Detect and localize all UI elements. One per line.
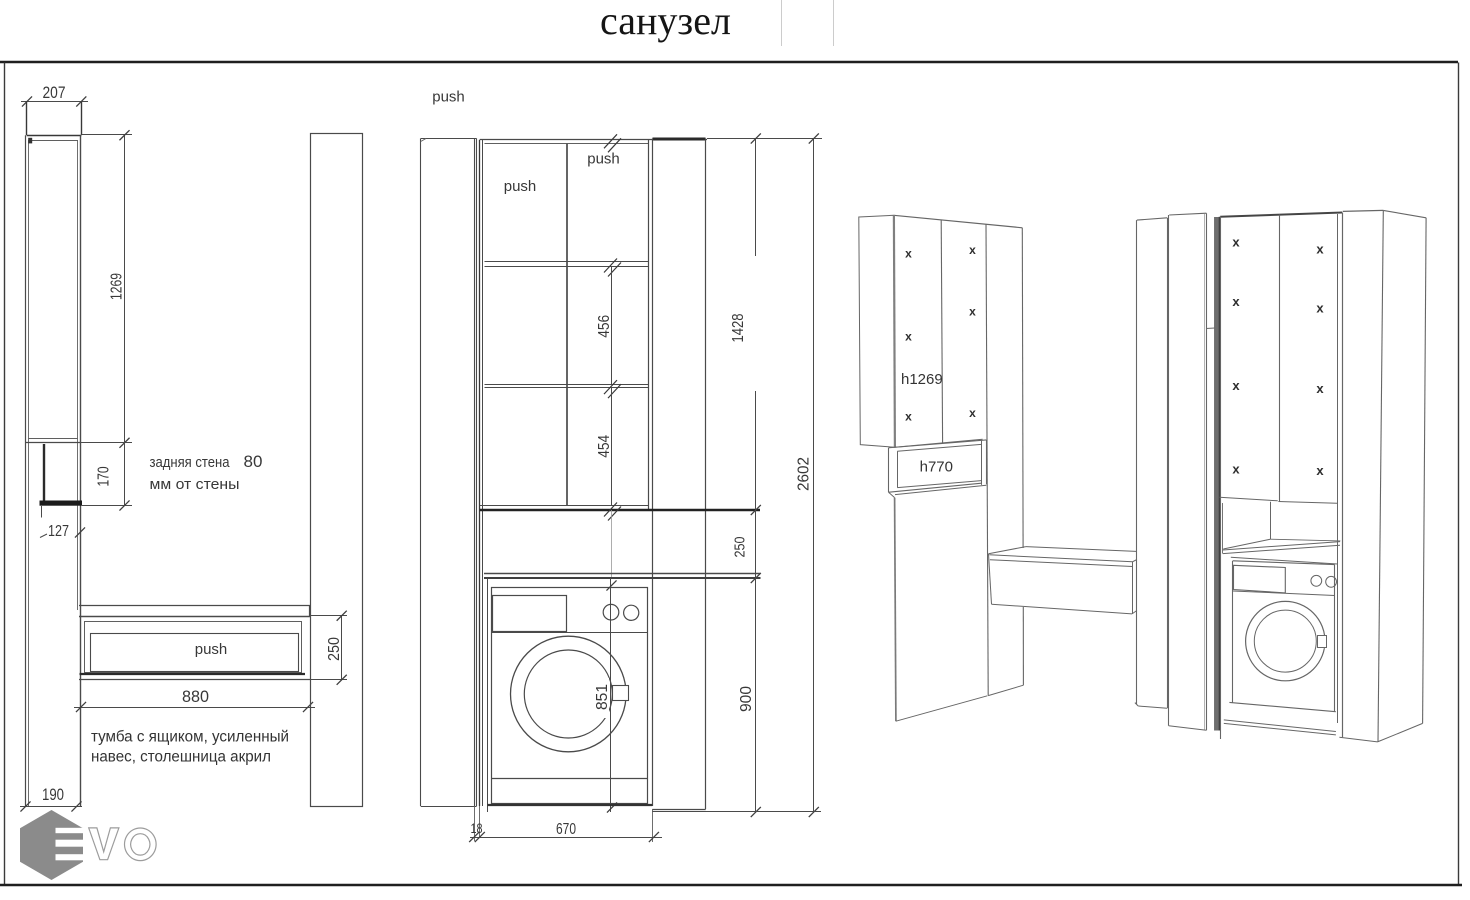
- svg-text:207: 207: [43, 83, 66, 102]
- svg-text:санузел: санузел: [600, 0, 731, 43]
- svg-text:x: x: [1232, 234, 1240, 249]
- svg-text:x: x: [905, 410, 912, 424]
- svg-text:x: x: [905, 247, 912, 261]
- svg-text:x: x: [1316, 381, 1324, 396]
- svg-text:x: x: [969, 305, 976, 319]
- svg-text:x: x: [969, 243, 976, 257]
- svg-text:push: push: [432, 89, 465, 106]
- svg-text:x: x: [905, 330, 912, 344]
- svg-text:80: 80: [244, 452, 263, 471]
- svg-text:250: 250: [732, 537, 749, 558]
- svg-text:x: x: [1232, 378, 1240, 393]
- svg-text:454: 454: [596, 434, 613, 457]
- svg-text:456: 456: [596, 315, 613, 338]
- svg-text:x: x: [1232, 462, 1240, 477]
- svg-text:x: x: [969, 406, 976, 420]
- svg-text:x: x: [1316, 301, 1324, 316]
- svg-text:2602: 2602: [796, 457, 813, 491]
- svg-text:880: 880: [182, 687, 209, 706]
- svg-text:мм от стены: мм от стены: [150, 476, 240, 493]
- svg-text:1269: 1269: [109, 273, 126, 300]
- svg-text:push: push: [587, 151, 620, 168]
- svg-text:тумба с ящиком, усиленный: тумба с ящиком, усиленный: [91, 729, 289, 746]
- svg-text:h770: h770: [920, 459, 953, 476]
- svg-text:x: x: [1232, 294, 1240, 309]
- svg-text:x: x: [1316, 463, 1324, 478]
- svg-text:x: x: [1316, 241, 1324, 256]
- svg-text:851: 851: [594, 684, 611, 710]
- svg-text:h1269: h1269: [901, 371, 943, 388]
- svg-text:170: 170: [96, 466, 113, 486]
- svg-text:задняя стена: задняя стена: [150, 454, 231, 471]
- svg-text:670: 670: [556, 821, 576, 838]
- svg-text:900: 900: [738, 686, 755, 712]
- svg-text:1428: 1428: [730, 314, 747, 343]
- svg-text:push: push: [195, 641, 228, 658]
- svg-text:18: 18: [471, 820, 483, 836]
- svg-text:190: 190: [42, 785, 64, 804]
- svg-text:навес, столешница акрил: навес, столешница акрил: [91, 749, 271, 766]
- svg-text:127: 127: [48, 523, 69, 540]
- svg-text:250: 250: [326, 637, 343, 661]
- svg-text:push: push: [504, 178, 537, 195]
